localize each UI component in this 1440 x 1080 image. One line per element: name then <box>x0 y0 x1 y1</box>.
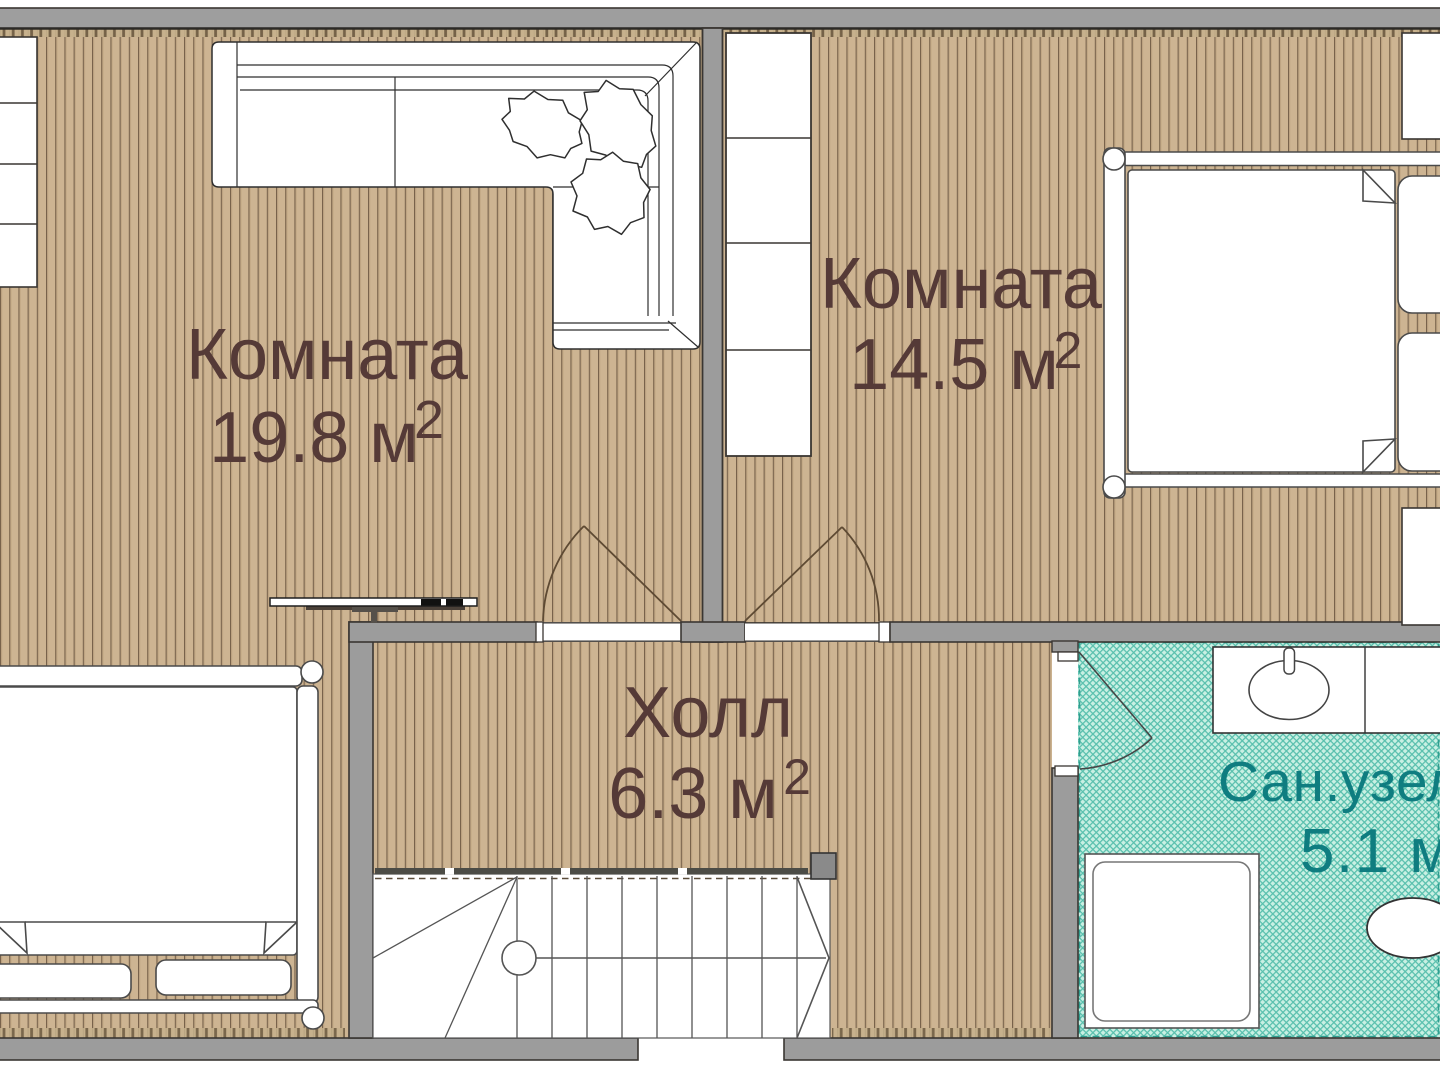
svg-text:Сан.узел: Сан.узел <box>1218 750 1440 814</box>
svg-text:Холл: Холл <box>623 673 793 753</box>
svg-text:2: 2 <box>414 390 444 450</box>
svg-text:14.5 м: 14.5 м <box>849 325 1059 405</box>
svg-text:Комната: Комната <box>186 315 469 395</box>
svg-text:2: 2 <box>1054 322 1083 380</box>
svg-text:6.3 м: 6.3 м <box>608 754 778 834</box>
svg-text:2: 2 <box>783 749 811 805</box>
svg-text:19.8 м: 19.8 м <box>209 398 419 478</box>
svg-text:5.1 м: 5.1 м <box>1300 817 1440 886</box>
svg-text:Комната: Комната <box>820 244 1103 324</box>
